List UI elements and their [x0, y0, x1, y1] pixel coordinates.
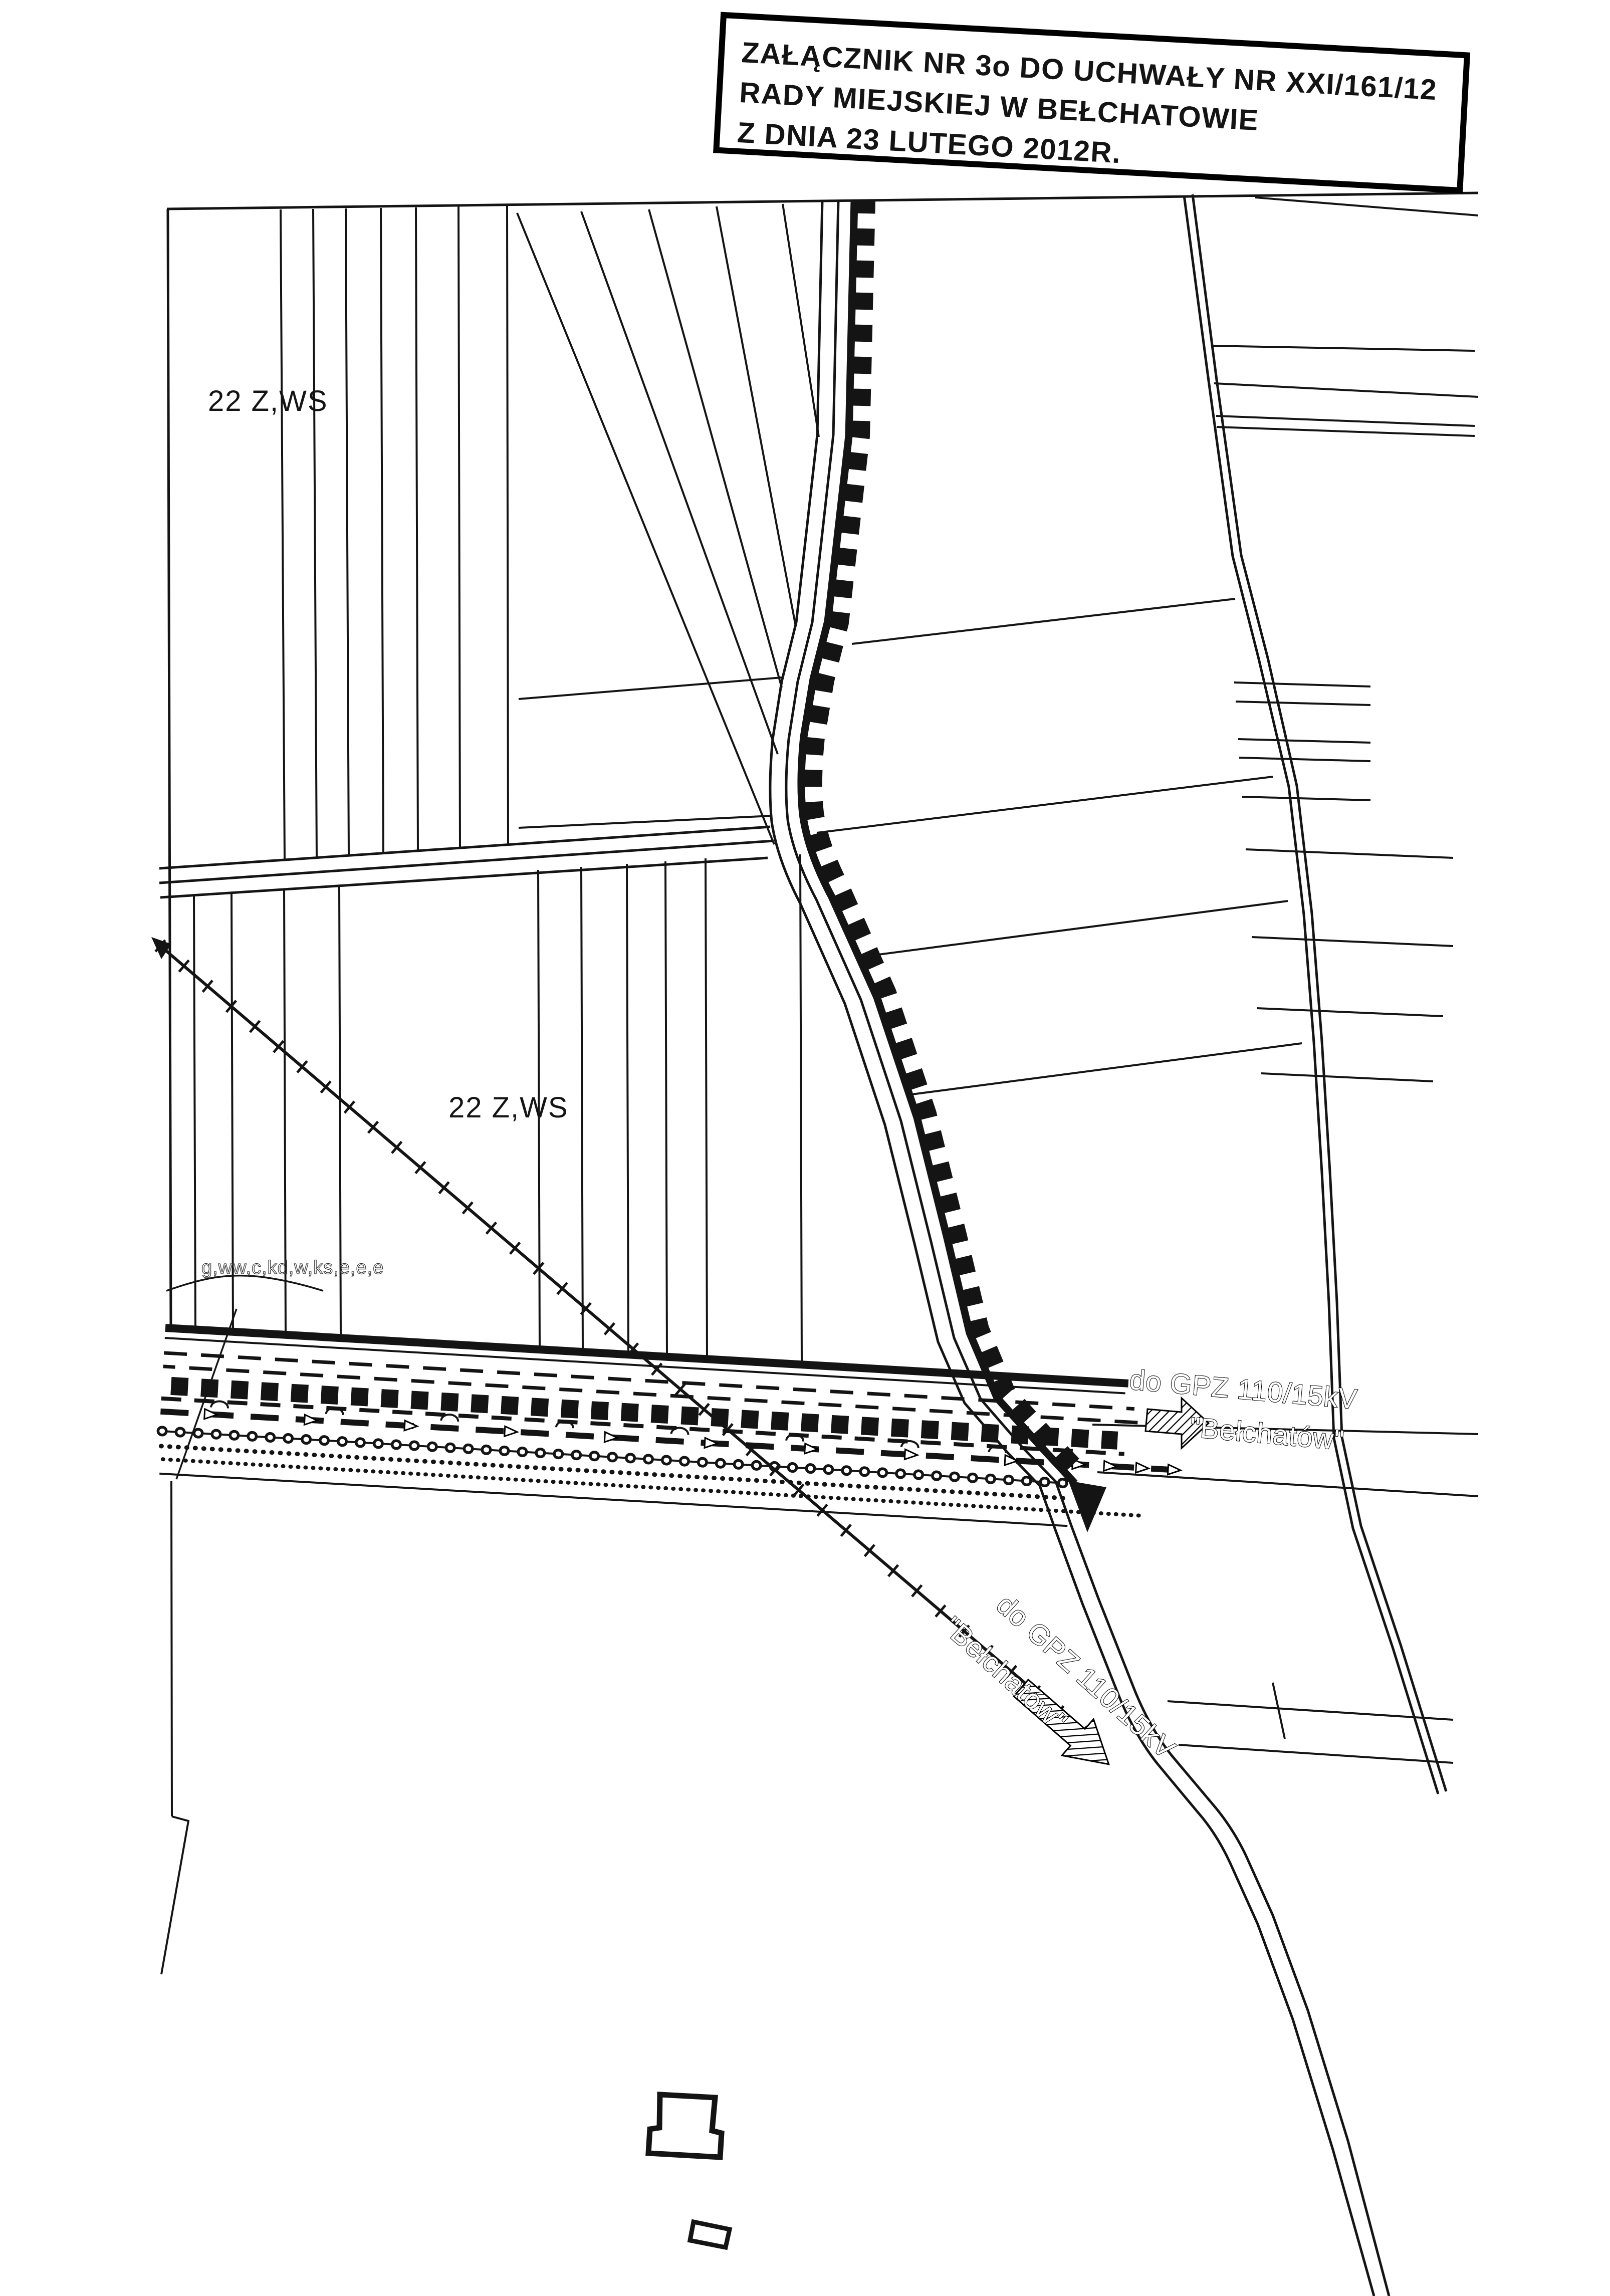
parcel-line [1216, 416, 1475, 426]
parcel-line [800, 854, 802, 1363]
corridor-dashed-line [161, 1399, 1124, 1454]
parcel-line [1242, 797, 1370, 800]
parcel-line [1238, 739, 1370, 743]
parcel-line [346, 208, 349, 856]
parcel-line [507, 205, 508, 845]
parcel-line [783, 204, 819, 437]
parcel-line [1097, 1472, 1478, 1496]
small-building-outline [690, 2222, 730, 2247]
building-outline [648, 2095, 722, 2157]
boundary-line [801, 200, 1075, 1483]
parcel-line [381, 208, 383, 853]
parcel-line [1261, 1073, 1433, 1081]
planning-map-scan: 22 Z,WS 22 Z,WS g,ww,c,kd,w,ks,e,e,e do … [0, 0, 1610, 2296]
map-left-edge-jog [161, 1816, 188, 1974]
parcel-line [1239, 758, 1370, 761]
parcel-line [665, 861, 667, 1355]
parcel-line [1214, 383, 1478, 397]
parcel-line [519, 816, 772, 828]
parcel-line [1236, 702, 1370, 705]
corridor-culvert-marks [211, 1401, 1006, 1453]
map-labels: 22 Z,WS 22 Z,WS g,ww,c,kd,w,ks,e,e,e do … [201, 385, 1359, 1803]
parcel-line [1257, 1008, 1443, 1016]
parcel-line [458, 206, 460, 848]
map-top-edge-second [1255, 197, 1478, 215]
parcel-line [717, 206, 796, 626]
parcel-line [1252, 937, 1453, 946]
corridor-line [159, 1474, 1067, 1526]
parcel-line [1211, 346, 1475, 351]
parcel-lines-wedge [517, 204, 819, 844]
road-along-boundary [770, 200, 1389, 2296]
utilities-label: g,ww,c,kd,w,ks,e,e,e [201, 1257, 384, 1278]
buildings [648, 2095, 730, 2247]
road-edge [1184, 195, 1438, 1794]
middle-track-lines [159, 827, 774, 897]
map-left-edge [168, 209, 171, 1328]
map-frame [161, 193, 1478, 1974]
zone-label-22zws-top: 22 Z,WS [208, 385, 328, 417]
parcel-line [1179, 1745, 1453, 1763]
zone-label-22zws-mid: 22 Z,WS [448, 1091, 569, 1124]
parcel-line [581, 211, 778, 754]
corridor-dotted-line [163, 1459, 1143, 1516]
parcel-line [1217, 427, 1475, 436]
road-edge [770, 200, 1374, 2296]
decision-stamp: ZAŁĄCZNIK NR 3o DO UCHWAŁY NR XXI/161/12… [716, 15, 1467, 190]
parcel-line [194, 896, 195, 1328]
gpz-label-right-line2: "Bełchatów" [1189, 1411, 1345, 1456]
gpz-label-right-line1: do GPZ 110/15kV [1128, 1363, 1359, 1415]
boundary-end-arrow [1068, 1481, 1106, 1532]
parcel-line [1246, 849, 1453, 858]
parcel-line [1273, 1683, 1285, 1739]
parcel-line [852, 599, 1235, 644]
infrastructure-corridor [157, 1276, 1185, 1532]
power-line-start-arrow [151, 937, 171, 959]
parcel-lines-top-left [281, 205, 508, 860]
planning-map-page: 22 Z,WS 22 Z,WS g,ww,c,kd,w,ks,e,e,e do … [0, 0, 1610, 2296]
gpz-label-diagonal: do GPZ 110/15kV "Bełchatów" [937, 1572, 1182, 1804]
parcel-line [313, 209, 317, 858]
parcel-line [706, 858, 707, 1358]
parcel-lines-right-side [1092, 346, 1478, 1763]
parcel-line [627, 864, 628, 1353]
parcel-line [519, 677, 782, 699]
map-left-edge-lower [171, 1481, 172, 1816]
parcel-line [281, 209, 285, 860]
parcel-line [416, 207, 418, 851]
parcel-line [817, 777, 1273, 833]
parcel-line [908, 1043, 1302, 1095]
parcel-line [581, 867, 583, 1350]
parcel-line [1234, 682, 1370, 686]
parcel-line [867, 901, 1288, 956]
road-edge [786, 200, 1389, 2296]
